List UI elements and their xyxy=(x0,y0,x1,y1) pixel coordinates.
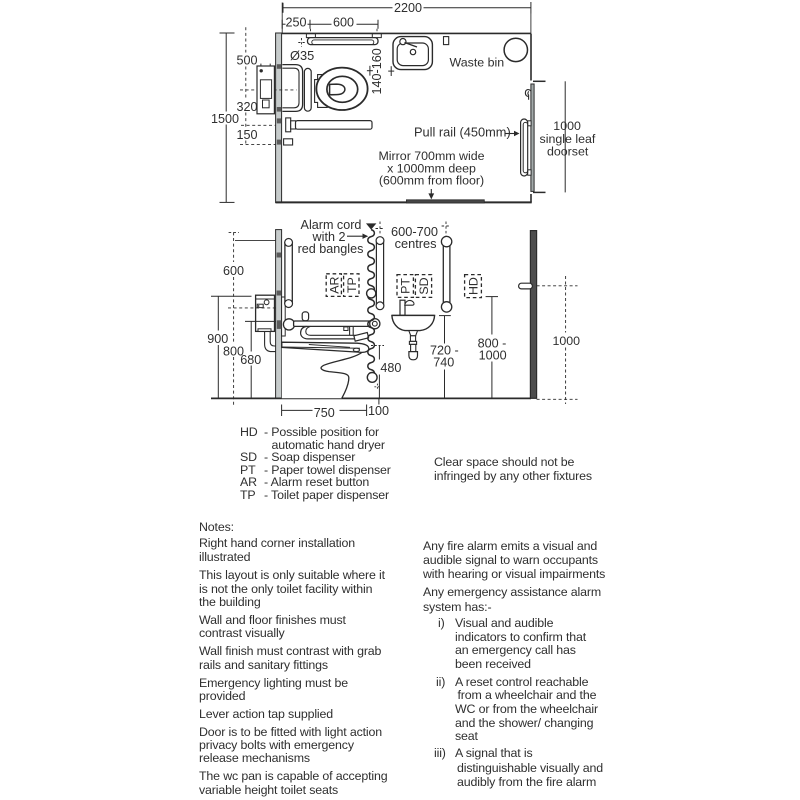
svg-text:750: 750 xyxy=(314,406,335,420)
svg-text:500: 500 xyxy=(237,54,258,68)
svg-text:PT: PT xyxy=(399,278,413,294)
svg-text:2200: 2200 xyxy=(394,1,422,15)
svg-text:Pull rail (450mm): Pull rail (450mm) xyxy=(414,125,511,140)
svg-text:480: 480 xyxy=(380,361,401,375)
svg-text:150: 150 xyxy=(237,128,258,142)
svg-text:320: 320 xyxy=(237,100,258,114)
svg-text:(600mm from floor): (600mm from floor) xyxy=(379,174,484,188)
svg-text:SD: SD xyxy=(417,277,431,294)
svg-text:doorset: doorset xyxy=(547,145,589,159)
svg-text:HD: HD xyxy=(467,277,481,295)
svg-text:red bangles: red bangles xyxy=(298,242,364,256)
svg-text:Ø35: Ø35 xyxy=(290,48,314,63)
svg-text:600: 600 xyxy=(223,264,244,278)
svg-text:AR: AR xyxy=(327,276,341,293)
svg-text:100: 100 xyxy=(368,404,389,418)
svg-text:1500: 1500 xyxy=(211,112,239,126)
svg-text:680: 680 xyxy=(240,353,261,367)
svg-text:600: 600 xyxy=(333,15,354,29)
svg-text:740: 740 xyxy=(433,356,454,370)
svg-text:250: 250 xyxy=(285,15,306,29)
svg-text:1000: 1000 xyxy=(553,334,581,348)
svg-text:1000: 1000 xyxy=(479,349,507,363)
svg-text:Waste bin: Waste bin xyxy=(450,55,505,69)
svg-text:140-160: 140-160 xyxy=(370,48,384,94)
svg-text:TP: TP xyxy=(345,277,359,293)
svg-text:centres: centres xyxy=(395,236,437,251)
svg-text:1000: 1000 xyxy=(553,119,581,133)
